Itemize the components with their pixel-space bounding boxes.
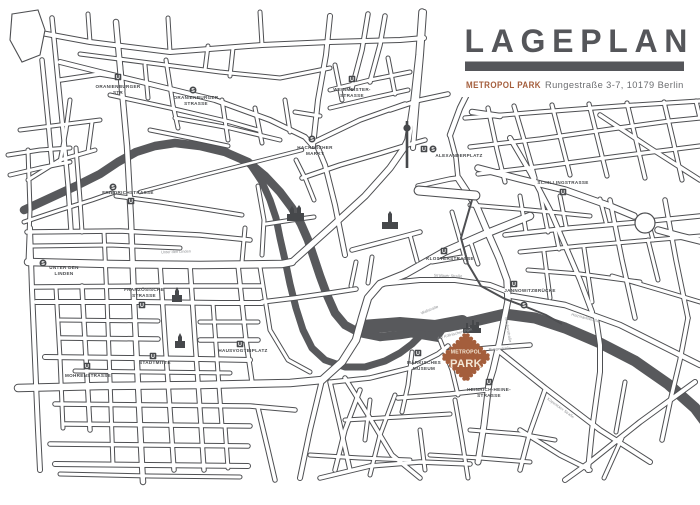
svg-text:Unter den Linden: Unter den Linden — [161, 248, 191, 254]
svg-text:U: U — [416, 351, 420, 357]
svg-text:ORANIENBURGER: ORANIENBURGER — [174, 95, 219, 100]
svg-text:STRASSE: STRASSE — [340, 93, 364, 98]
svg-text:U: U — [487, 380, 491, 386]
svg-text:MOHRENSTRASSE: MOHRENSTRASSE — [65, 373, 111, 378]
svg-text:ORANIENBURGER: ORANIENBURGER — [96, 84, 141, 89]
svg-text:U: U — [561, 190, 565, 196]
svg-text:S: S — [522, 303, 526, 309]
svg-text:Stralauer Straße: Stralauer Straße — [434, 273, 463, 279]
svg-text:U: U — [442, 249, 446, 255]
svg-text:STRASSE: STRASSE — [132, 293, 156, 298]
svg-text:METROPOL PARK: METROPOL PARK — [466, 80, 541, 91]
svg-text:KLOSTERSTRASSE: KLOSTERSTRASSE — [426, 256, 474, 261]
svg-text:STRASSE: STRASSE — [477, 393, 501, 398]
svg-text:STADTMITTE: STADTMITTE — [139, 360, 171, 365]
svg-text:FRIEDRICHSTRASSE: FRIEDRICHSTRASSE — [102, 190, 154, 195]
svg-text:FRANZÖSISCHE: FRANZÖSISCHE — [124, 286, 164, 292]
svg-text:LINDEN: LINDEN — [55, 271, 74, 276]
svg-text:HACKESCHER: HACKESCHER — [297, 145, 333, 150]
svg-text:MARKT: MARKT — [306, 151, 324, 156]
svg-text:U: U — [422, 147, 426, 153]
svg-text:MUSEUM: MUSEUM — [413, 366, 435, 371]
svg-text:U: U — [350, 77, 354, 83]
svg-text:U: U — [129, 199, 133, 205]
svg-text:HAUSVOGTEIPLATZ: HAUSVOGTEIPLATZ — [218, 348, 267, 353]
svg-text:HEINRICH-HEINE-: HEINRICH-HEINE- — [467, 387, 511, 392]
svg-text:S: S — [41, 261, 45, 267]
svg-text:LAGEPLAN: LAGEPLAN — [465, 23, 695, 59]
svg-text:METROPOL: METROPOL — [451, 350, 481, 356]
svg-text:MÄRKISCHES: MÄRKISCHES — [407, 359, 441, 365]
svg-text:JANNOWITZBRÜCKE: JANNOWITZBRÜCKE — [504, 287, 555, 293]
svg-text:U: U — [140, 303, 144, 309]
svg-text:SCHILLINGSTRASSE: SCHILLINGSTRASSE — [537, 180, 588, 185]
svg-text:S: S — [191, 88, 195, 94]
svg-text:U: U — [85, 364, 89, 370]
svg-text:UNTER DEN: UNTER DEN — [49, 265, 79, 270]
svg-text:WEINMEISTER-: WEINMEISTER- — [333, 87, 371, 92]
svg-text:Rungestraße 3-7, 10179 Berlin: Rungestraße 3-7, 10179 Berlin — [545, 80, 684, 90]
svg-text:PARK: PARK — [450, 358, 482, 370]
svg-text:STR: STR — [113, 90, 123, 95]
svg-text:ALEXANDERPLATZ: ALEXANDERPLATZ — [435, 153, 482, 158]
svg-text:STRASSE: STRASSE — [184, 101, 208, 106]
svg-text:U: U — [116, 75, 120, 81]
svg-text:S: S — [310, 137, 314, 143]
